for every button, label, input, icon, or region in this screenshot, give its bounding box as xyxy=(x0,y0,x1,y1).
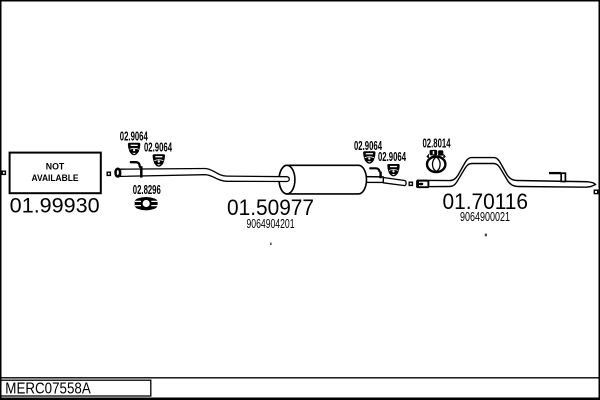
svg-text:02.8296: 02.8296 xyxy=(133,183,161,197)
svg-text:02.8014: 02.8014 xyxy=(423,136,451,150)
svg-text:AVAILABLE: AVAILABLE xyxy=(32,173,79,183)
svg-text:NOT: NOT xyxy=(46,162,65,172)
svg-text:MERC07558A: MERC07558A xyxy=(5,381,91,398)
svg-text:9064900021: 9064900021 xyxy=(460,210,510,224)
svg-text:02.9064: 02.9064 xyxy=(144,141,172,155)
svg-text:9064904201: 9064904201 xyxy=(247,217,295,231)
svg-text:01.99930: 01.99930 xyxy=(10,194,100,218)
svg-text:02.9064: 02.9064 xyxy=(378,150,406,164)
